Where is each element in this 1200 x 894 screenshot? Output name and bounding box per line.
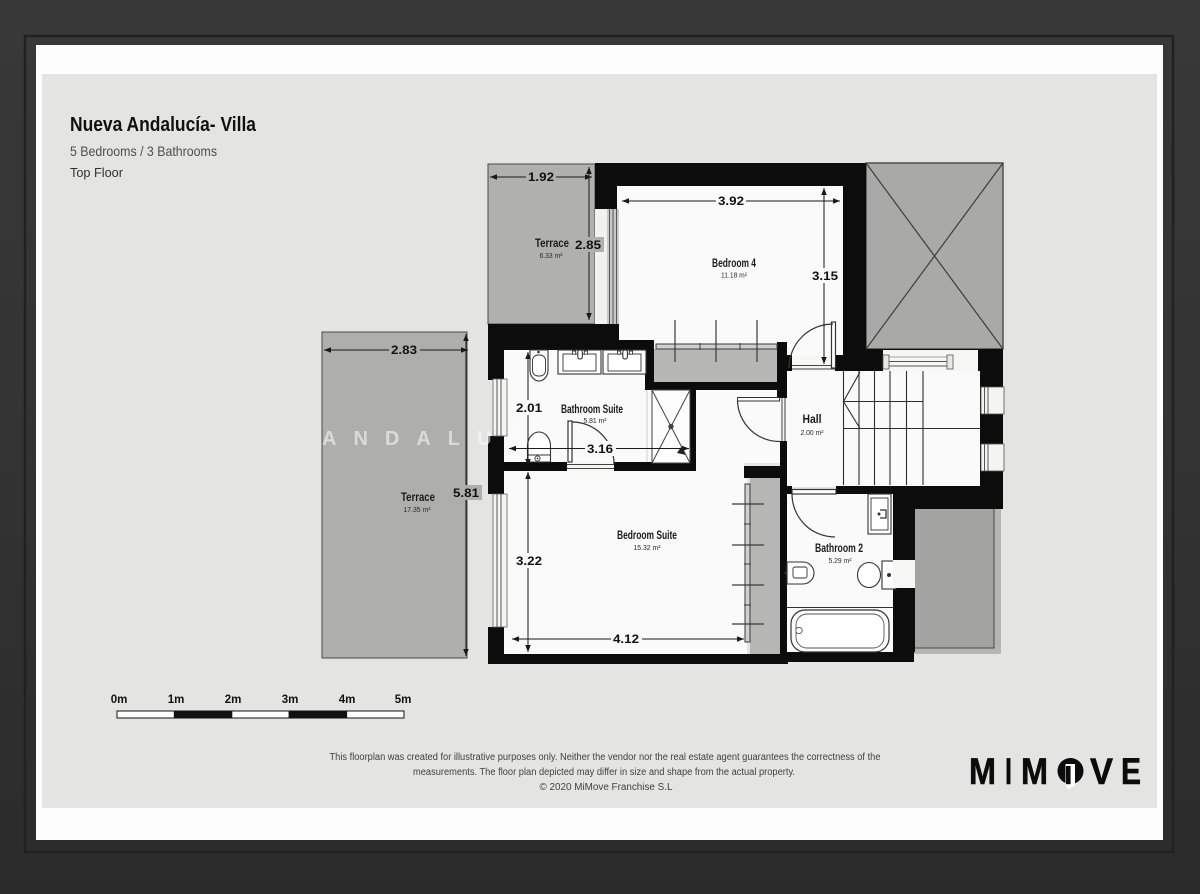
svg-text:3.16: 3.16 xyxy=(587,442,613,456)
svg-text:© 2020 MiMove Franchise S.L: © 2020 MiMove Franchise S.L xyxy=(540,782,673,793)
svg-text:3.15: 3.15 xyxy=(812,269,838,283)
svg-text:1.92: 1.92 xyxy=(528,170,554,184)
svg-text:3.92: 3.92 xyxy=(718,194,744,208)
svg-text:2m: 2m xyxy=(225,694,242,706)
svg-text:I: I xyxy=(1005,751,1012,792)
svg-text:Hall: Hall xyxy=(803,414,822,426)
svg-text:M: M xyxy=(969,751,996,792)
svg-text:2.85: 2.85 xyxy=(575,238,601,252)
svg-text:5.29 m²: 5.29 m² xyxy=(829,556,852,565)
svg-text:11.18 m²: 11.18 m² xyxy=(721,271,747,280)
svg-text:ANDALUC: ANDALUC xyxy=(322,428,540,450)
svg-text:Top Floor: Top Floor xyxy=(70,165,124,180)
svg-text:5.81 m²: 5.81 m² xyxy=(584,416,607,425)
svg-text:5m: 5m xyxy=(395,694,412,706)
svg-text:3m: 3m xyxy=(282,694,299,706)
svg-text:5.81: 5.81 xyxy=(453,486,479,500)
svg-text:4m: 4m xyxy=(339,694,356,706)
svg-text:Bathroom Suite: Bathroom Suite xyxy=(561,404,623,416)
svg-text:1m: 1m xyxy=(168,694,185,706)
svg-text:M: M xyxy=(1021,751,1048,792)
svg-text:17.35 m²: 17.35 m² xyxy=(404,505,431,514)
svg-text:4.12: 4.12 xyxy=(613,632,639,646)
svg-text:5 Bedrooms / 3 Bathrooms: 5 Bedrooms / 3 Bathrooms xyxy=(70,143,217,159)
svg-text:2.01: 2.01 xyxy=(516,401,542,415)
svg-text:measurements. The floor plan d: measurements. The floor plan depicted ma… xyxy=(413,767,795,778)
svg-text:2.83: 2.83 xyxy=(391,343,417,357)
svg-text:E: E xyxy=(1121,751,1141,792)
svg-text:15.32 m²: 15.32 m² xyxy=(634,543,661,552)
svg-text:This floorplan was created for: This floorplan was created for illustrat… xyxy=(330,752,881,763)
svg-text:Bathroom 2: Bathroom 2 xyxy=(815,543,863,555)
svg-text:Nueva Andalucía- Villa: Nueva Andalucía- Villa xyxy=(70,114,257,136)
svg-text:V: V xyxy=(1090,751,1113,792)
svg-text:Bedroom Suite: Bedroom Suite xyxy=(617,530,677,542)
svg-text:Terrace: Terrace xyxy=(535,238,569,250)
svg-text:3.22: 3.22 xyxy=(516,554,542,568)
svg-text:6.33 m²: 6.33 m² xyxy=(540,251,563,260)
svg-text:2.00 m²: 2.00 m² xyxy=(801,428,824,437)
svg-text:Bedroom 4: Bedroom 4 xyxy=(712,258,756,270)
svg-text:0m: 0m xyxy=(111,694,128,706)
svg-text:Terrace: Terrace xyxy=(401,492,435,504)
